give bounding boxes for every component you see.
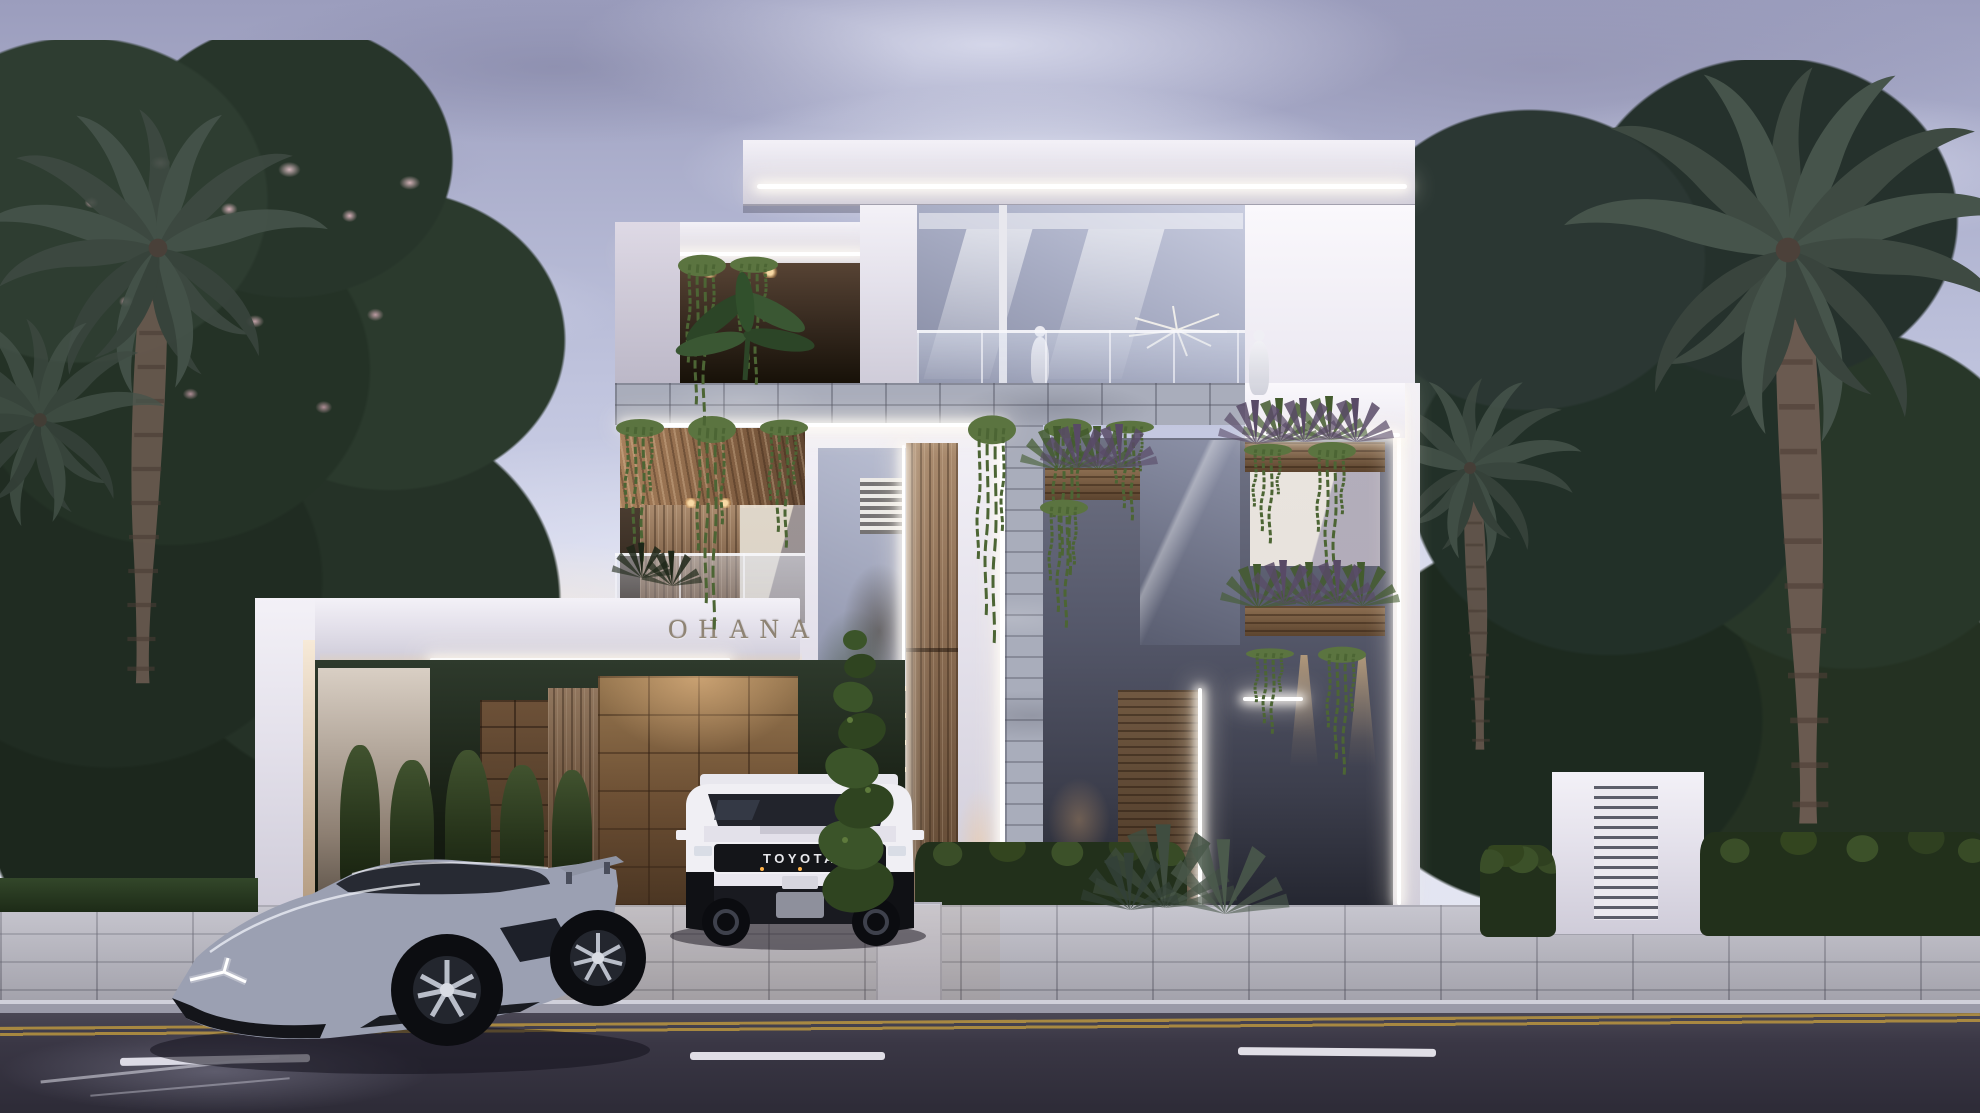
supercar-lamborghini xyxy=(150,856,650,1074)
villa-dusk-render: OHANA xyxy=(0,0,1980,1113)
foreground-objects: TOYOTA xyxy=(0,0,1980,1113)
palmetto-plants xyxy=(1081,824,1290,914)
